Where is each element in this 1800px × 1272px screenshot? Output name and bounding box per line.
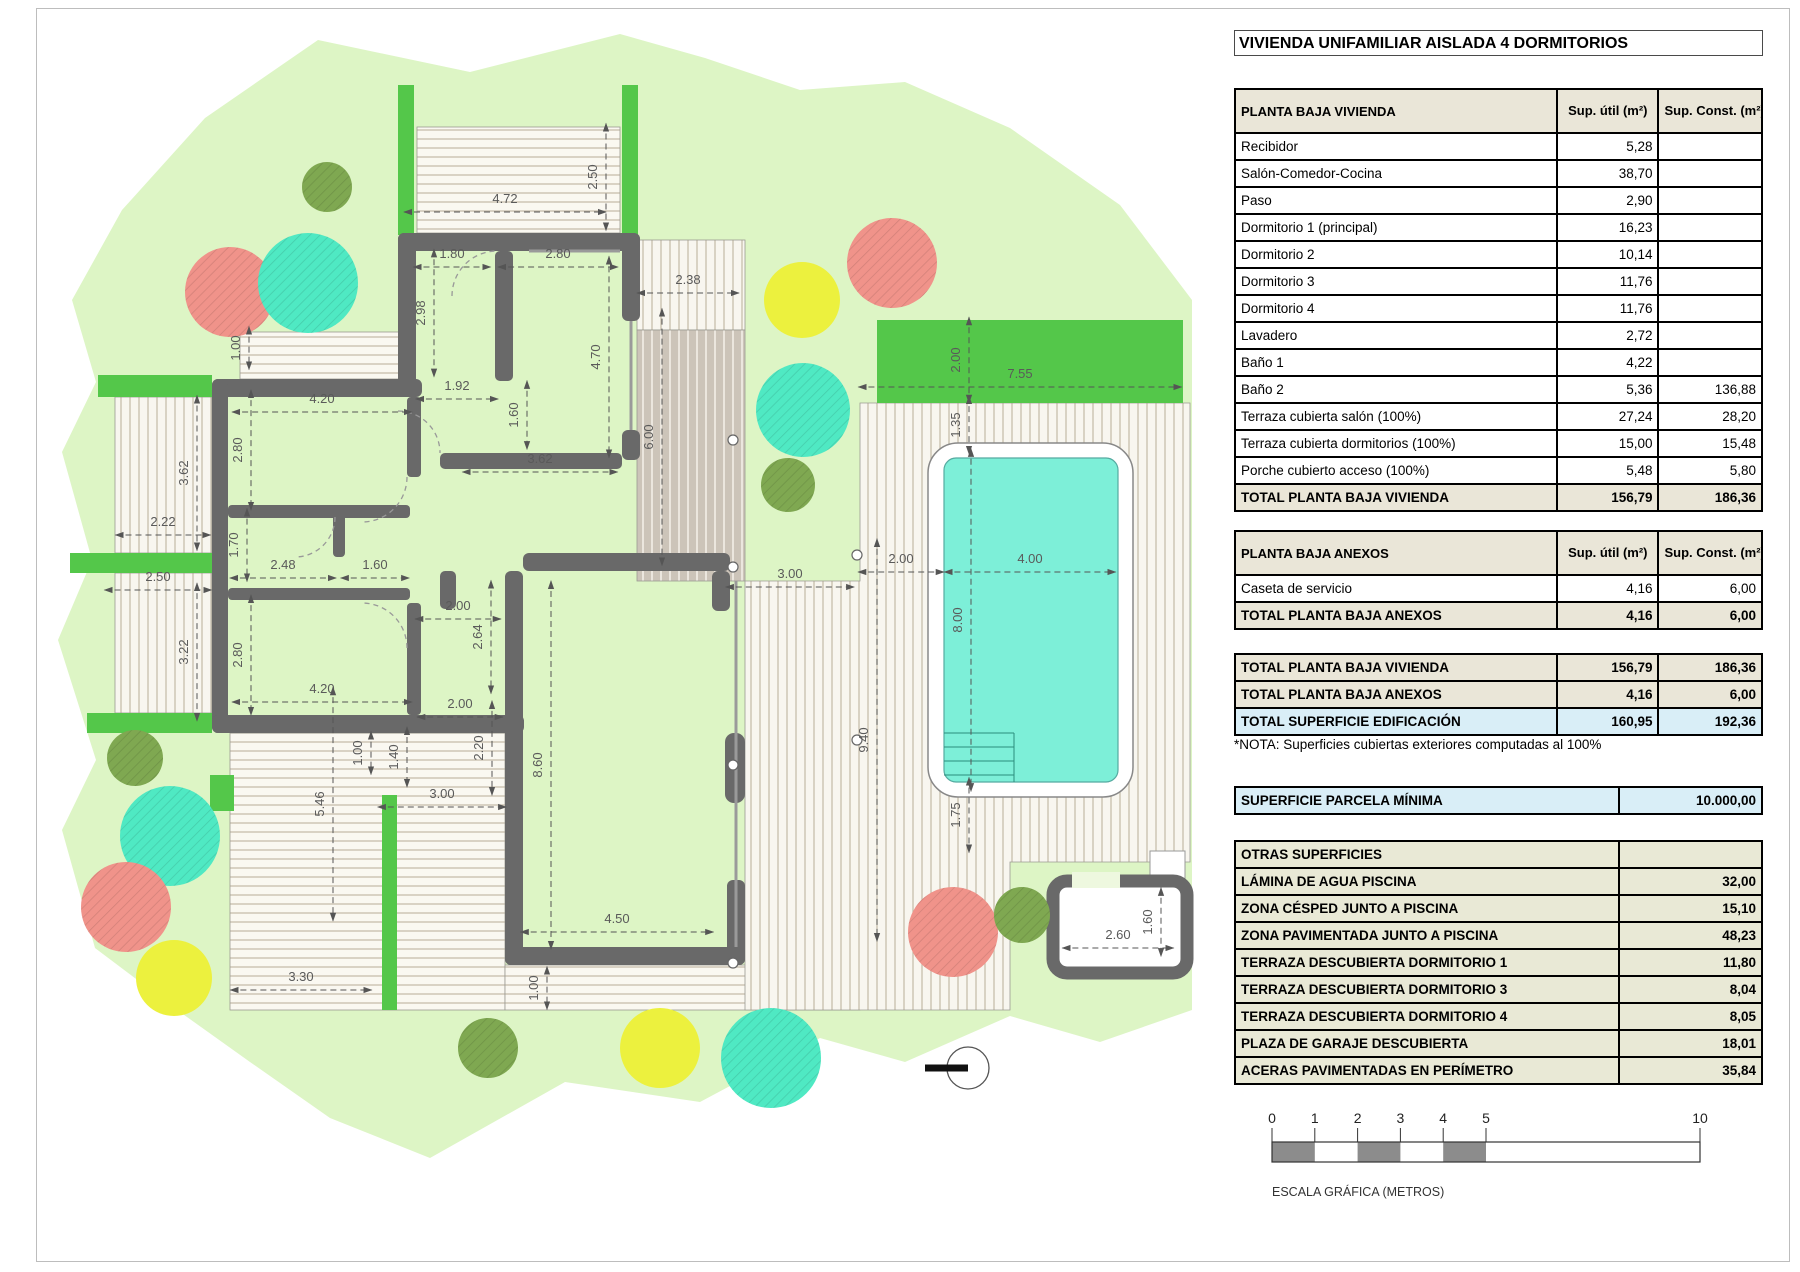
- table-row: LÁMINA DE AGUA PISCINA 32,00: [1235, 868, 1762, 895]
- row-sup-const: [1658, 160, 1762, 187]
- row-sup-const: [1658, 241, 1762, 268]
- row-label: Recibidor: [1235, 133, 1557, 160]
- dimension-label: 4.20: [309, 391, 334, 406]
- table-row: Baño 2 5,36 136,88: [1235, 376, 1762, 403]
- row-sup-const: 28,20: [1658, 403, 1762, 430]
- row-label: Salón-Comedor-Cocina: [1235, 160, 1557, 187]
- dimension-label: 6.00: [641, 424, 656, 449]
- row-label: Baño 2: [1235, 376, 1557, 403]
- row-label: TOTAL PLANTA BAJA VIVIENDA: [1235, 654, 1557, 681]
- row-sup-util: 5,48: [1557, 457, 1658, 484]
- table-row: Dormitorio 4 11,76: [1235, 295, 1762, 322]
- scale-tick-label: 3: [1397, 1110, 1405, 1126]
- row-label: LÁMINA DE AGUA PISCINA: [1235, 868, 1619, 895]
- tree-yellow: [764, 262, 840, 338]
- row-sup-const: 192,36: [1658, 708, 1762, 735]
- col-header-sup-util: Sup. útil (m²): [1557, 531, 1658, 575]
- floor-plan: 2.504.721.802.802.382.984.701.001.921.60…: [0, 0, 1230, 1272]
- scale-tick-label: 10: [1692, 1110, 1708, 1126]
- row-value: 35,84: [1619, 1057, 1762, 1084]
- row-label: PLAZA DE GARAJE DESCUBIERTA: [1235, 1030, 1619, 1057]
- tree-teal: [258, 233, 358, 333]
- row-sup-util: 27,24: [1557, 403, 1658, 430]
- table-row: Dormitorio 3 11,76: [1235, 268, 1762, 295]
- row-label: Terraza cubierta dormitorios (100%): [1235, 430, 1557, 457]
- row-sup-const: 6,00: [1658, 681, 1762, 708]
- dimension-label: 3.30: [288, 969, 313, 984]
- dimension-label: 8.00: [950, 607, 965, 632]
- dimension-label: 1.92: [444, 378, 469, 393]
- row-sup-const: [1658, 133, 1762, 160]
- green-gate: [210, 775, 234, 811]
- table-row: TERRAZA DESCUBIERTA DORMITORIO 4 8,05: [1235, 1003, 1762, 1030]
- empty-header-cell: [1619, 841, 1762, 868]
- row-label: Baño 1: [1235, 349, 1557, 376]
- table-row: PLAZA DE GARAJE DESCUBIERTA 18,01: [1235, 1030, 1762, 1057]
- row-sup-util: 11,76: [1557, 268, 1658, 295]
- row-sup-const: 136,88: [1658, 376, 1762, 403]
- row-label: ZONA PAVIMENTADA JUNTO A PISCINA: [1235, 922, 1619, 949]
- graphic-scale: 01234510 ESCALA GRÁFICA (METROS): [1240, 1100, 1760, 1220]
- row-sup-util: 2,72: [1557, 322, 1658, 349]
- table-row: Porche cubierto acceso (100%) 5,48 5,80: [1235, 457, 1762, 484]
- table-total-row: TOTAL PLANTA BAJA ANEXOS 4,16 6,00: [1235, 602, 1762, 629]
- row-value: 15,10: [1619, 895, 1762, 922]
- total-util: 156,79: [1557, 484, 1658, 511]
- section-header: OTRAS SUPERFICIES: [1235, 841, 1619, 868]
- row-value: 48,23: [1619, 922, 1762, 949]
- row-sup-const: [1658, 322, 1762, 349]
- row-sup-util: 15,00: [1557, 430, 1658, 457]
- row-sup-util: 38,70: [1557, 160, 1658, 187]
- table-row: Dormitorio 1 (principal) 16,23: [1235, 214, 1762, 241]
- table-parcela-minima: SUPERFICIE PARCELA MÍNIMA 10.000,00: [1234, 786, 1763, 815]
- pool-pergola: [877, 320, 1183, 403]
- row-sup-const: 186,36: [1658, 654, 1762, 681]
- section-header: PLANTA BAJA VIVIENDA: [1235, 89, 1557, 133]
- tree-olive: [107, 730, 163, 786]
- dimension-label: 1.75: [948, 802, 963, 827]
- tree-olive: [761, 458, 815, 512]
- dimension-label: 1.60: [1140, 909, 1155, 934]
- table-row: Paso 2,90: [1235, 187, 1762, 214]
- table-header-row: PLANTA BAJA VIVIENDA Sup. útil (m²) Sup.…: [1235, 89, 1762, 133]
- dimension-label: 1.70: [226, 532, 241, 557]
- row-sup-const: 6,00: [1658, 575, 1762, 602]
- row-value: 18,01: [1619, 1030, 1762, 1057]
- row-label: Lavadero: [1235, 322, 1557, 349]
- pergola-beam-3: [87, 713, 212, 733]
- scale-caption: ESCALA GRÁFICA (METROS): [1272, 1184, 1444, 1199]
- table-row: TERRAZA DESCUBIERTA DORMITORIO 1 11,80: [1235, 949, 1762, 976]
- tree-yellow: [620, 1008, 700, 1088]
- table-row: Terraza cubierta dormitorios (100%) 15,0…: [1235, 430, 1762, 457]
- page-title: VIVIENDA UNIFAMILIAR AISLADA 4 DORMITORI…: [1234, 30, 1763, 56]
- table-row: TOTAL PLANTA BAJA VIVIENDA 156,79 186,36: [1235, 654, 1762, 681]
- table-row: ZONA PAVIMENTADA JUNTO A PISCINA 48,23: [1235, 922, 1762, 949]
- table-row: Caseta de servicio 4,16 6,00: [1235, 575, 1762, 602]
- scale-tick-label: 0: [1268, 1110, 1276, 1126]
- total-label: TOTAL PLANTA BAJA ANEXOS: [1235, 602, 1557, 629]
- tree-salmon: [908, 887, 998, 977]
- dimension-label: 4.70: [588, 344, 603, 369]
- dimension-label: 4.00: [1017, 551, 1042, 566]
- table-row: Terraza cubierta salón (100%) 27,24 28,2…: [1235, 403, 1762, 430]
- total-const: 186,36: [1658, 484, 1762, 511]
- row-label: Paso: [1235, 187, 1557, 214]
- row-label: Dormitorio 3: [1235, 268, 1557, 295]
- row-value: 8,04: [1619, 976, 1762, 1003]
- dimension-label: 2.50: [145, 569, 170, 584]
- dimension-label: 5.46: [312, 791, 327, 816]
- row-sup-util: 10,14: [1557, 241, 1658, 268]
- dimension-label: 1.35: [948, 412, 963, 437]
- table-row: Baño 1 4,22: [1235, 349, 1762, 376]
- table-row: ZONA CÉSPED JUNTO A PISCINA 15,10: [1235, 895, 1762, 922]
- dimension-label: 3.62: [527, 451, 552, 466]
- row-label: TOTAL SUPERFICIE EDIFICACIÓN: [1235, 708, 1557, 735]
- dimension-label: 1.60: [362, 557, 387, 572]
- dimension-label: 7.55: [1007, 366, 1032, 381]
- scale-tick-label: 4: [1439, 1110, 1447, 1126]
- row-sup-const: [1658, 268, 1762, 295]
- garage-plaza: [230, 733, 505, 1010]
- dimension-label: 2.64: [470, 624, 485, 649]
- row-label: TERRAZA DESCUBIERTA DORMITORIO 1: [1235, 949, 1619, 976]
- parcela-label: SUPERFICIE PARCELA MÍNIMA: [1235, 787, 1619, 814]
- dimension-label: 4.50: [604, 911, 629, 926]
- table-row: Salón-Comedor-Cocina 38,70: [1235, 160, 1762, 187]
- row-sup-const: [1658, 214, 1762, 241]
- row-label: Dormitorio 2: [1235, 241, 1557, 268]
- parcela-value: 10.000,00: [1619, 787, 1762, 814]
- row-sup-const: 5,80: [1658, 457, 1762, 484]
- tree-teal: [721, 1008, 821, 1108]
- table-resumen-totales: TOTAL PLANTA BAJA VIVIENDA 156,79 186,36…: [1234, 653, 1763, 736]
- tree-salmon: [81, 862, 171, 952]
- dimension-label: 4.72: [492, 191, 517, 206]
- dimension-label: 3.00: [777, 566, 802, 581]
- green-strip-bottom: [382, 795, 397, 1010]
- dimension-label: 2.20: [471, 735, 486, 760]
- row-label: TERRAZA DESCUBIERTA DORMITORIO 3: [1235, 976, 1619, 1003]
- row-label: Terraza cubierta salón (100%): [1235, 403, 1557, 430]
- pergola-beam-1: [98, 375, 212, 397]
- total-const: 6,00: [1658, 602, 1762, 629]
- dimension-label: 3.00: [429, 786, 454, 801]
- dimension-label: 1.40: [386, 744, 401, 769]
- row-value: 32,00: [1619, 868, 1762, 895]
- table-row: TOTAL PLANTA BAJA ANEXOS 4,16 6,00: [1235, 681, 1762, 708]
- row-sup-util: 4,22: [1557, 349, 1658, 376]
- pergola-beam-2: [70, 553, 212, 573]
- row-sup-util: 5,36: [1557, 376, 1658, 403]
- row-label: ZONA CÉSPED JUNTO A PISCINA: [1235, 895, 1619, 922]
- row-sup-const: 15,48: [1658, 430, 1762, 457]
- dimension-label: 2.00: [447, 696, 472, 711]
- table-planta-baja-vivienda: PLANTA BAJA VIVIENDA Sup. útil (m²) Sup.…: [1234, 88, 1763, 512]
- table-header-row: OTRAS SUPERFICIES: [1235, 841, 1762, 868]
- table-row: Lavadero 2,72: [1235, 322, 1762, 349]
- scale-tick-label: 5: [1482, 1110, 1490, 1126]
- row-label: Dormitorio 4: [1235, 295, 1557, 322]
- dimension-label: 1.80: [439, 246, 464, 261]
- row-label: TERRAZA DESCUBIERTA DORMITORIO 4: [1235, 1003, 1619, 1030]
- footnote: *NOTA: Superficies cubiertas exteriores …: [1234, 737, 1763, 752]
- dimension-label: 1.00: [350, 740, 365, 765]
- utility-symbol: [925, 1047, 989, 1089]
- dimension-label: 3.62: [176, 460, 191, 485]
- dimension-label: 9.40: [856, 727, 871, 752]
- row-sup-util: 11,76: [1557, 295, 1658, 322]
- row-label: Caseta de servicio: [1235, 575, 1557, 602]
- row-value: 11,80: [1619, 949, 1762, 976]
- row-sup-util: 160,95: [1557, 708, 1658, 735]
- dimension-label: 8.60: [530, 752, 545, 777]
- dimension-label: 2.98: [413, 300, 428, 325]
- dimension-label: 1.60: [506, 402, 521, 427]
- scale-segment-filled: [1272, 1142, 1315, 1162]
- drawing-sheet: 2.504.721.802.802.382.984.701.001.921.60…: [0, 0, 1800, 1272]
- row-label: Porche cubierto acceso (100%): [1235, 457, 1557, 484]
- dimension-label: 2.80: [230, 642, 245, 667]
- col-header-sup-const: Sup. Const. (m²): [1658, 89, 1762, 133]
- dimension-label: 3.22: [176, 639, 191, 664]
- dimension-label: 2.38: [675, 272, 700, 287]
- pergola-post-right: [622, 85, 638, 235]
- dimension-label: 2.80: [230, 437, 245, 462]
- row-sup-util: 4,16: [1557, 575, 1658, 602]
- row-sup-util: 156,79: [1557, 654, 1658, 681]
- tree-salmon: [847, 218, 937, 308]
- scale-tick-label: 1: [1311, 1110, 1319, 1126]
- total-util: 4,16: [1557, 602, 1658, 629]
- dimension-label: 2.22: [150, 514, 175, 529]
- dimension-label: 1.00: [526, 975, 541, 1000]
- dimension-label: 2.50: [585, 164, 600, 189]
- covered-terrace-deck: [637, 330, 745, 581]
- dimension-label: 2.00: [445, 598, 470, 613]
- scale-segment-filled: [1443, 1142, 1486, 1162]
- tree-olive: [302, 162, 352, 212]
- row-sup-util: 4,16: [1557, 681, 1658, 708]
- row-sup-const: [1658, 349, 1762, 376]
- dimension-label: 2.48: [270, 557, 295, 572]
- dimension-label: 2.00: [888, 551, 913, 566]
- col-header-sup-util: Sup. útil (m²): [1557, 89, 1658, 133]
- dimension-label: 2.00: [948, 347, 963, 372]
- row-label: Dormitorio 1 (principal): [1235, 214, 1557, 241]
- section-header: PLANTA BAJA ANEXOS: [1235, 531, 1557, 575]
- walkway-top: [240, 332, 400, 379]
- dimension-label: 2.60: [1105, 927, 1130, 942]
- row-sup-const: [1658, 187, 1762, 214]
- row-sup-util: 2,90: [1557, 187, 1658, 214]
- dimension-label: 4.20: [309, 681, 334, 696]
- tree-olive: [994, 887, 1050, 943]
- row-sup-util: 5,28: [1557, 133, 1658, 160]
- tree-yellow: [136, 940, 212, 1016]
- dimension-label: 1.00: [228, 335, 243, 360]
- table-row: ACERAS PAVIMENTADAS EN PERÍMETRO 35,84: [1235, 1057, 1762, 1084]
- table-row: TERRAZA DESCUBIERTA DORMITORIO 3 8,04: [1235, 976, 1762, 1003]
- row-label: ACERAS PAVIMENTADAS EN PERÍMETRO: [1235, 1057, 1619, 1084]
- table-planta-baja-anexos: PLANTA BAJA ANEXOS Sup. útil (m²) Sup. C…: [1234, 530, 1763, 630]
- scale-tick-label: 2: [1354, 1110, 1362, 1126]
- tree-olive: [458, 1018, 518, 1078]
- table-total-row: TOTAL PLANTA BAJA VIVIENDA 156,79 186,36: [1235, 484, 1762, 511]
- table-header-row: PLANTA BAJA ANEXOS Sup. útil (m²) Sup. C…: [1235, 531, 1762, 575]
- row-sup-util: 16,23: [1557, 214, 1658, 241]
- row-value: 8,05: [1619, 1003, 1762, 1030]
- tree-teal: [756, 363, 850, 457]
- col-header-sup-const: Sup. Const. (m²): [1658, 531, 1762, 575]
- table-row: SUPERFICIE PARCELA MÍNIMA 10.000,00: [1235, 787, 1762, 814]
- table-row: Dormitorio 2 10,14: [1235, 241, 1762, 268]
- scale-segment-filled: [1358, 1142, 1401, 1162]
- row-sup-const: [1658, 295, 1762, 322]
- dimension-label: 2.80: [545, 246, 570, 261]
- row-label: TOTAL PLANTA BAJA ANEXOS: [1235, 681, 1557, 708]
- table-row: TOTAL SUPERFICIE EDIFICACIÓN 160,95 192,…: [1235, 708, 1762, 735]
- total-label: TOTAL PLANTA BAJA VIVIENDA: [1235, 484, 1557, 511]
- table-otras-superficies: OTRAS SUPERFICIES LÁMINA DE AGUA PISCINA…: [1234, 840, 1763, 1085]
- table-row: Recibidor 5,28: [1235, 133, 1762, 160]
